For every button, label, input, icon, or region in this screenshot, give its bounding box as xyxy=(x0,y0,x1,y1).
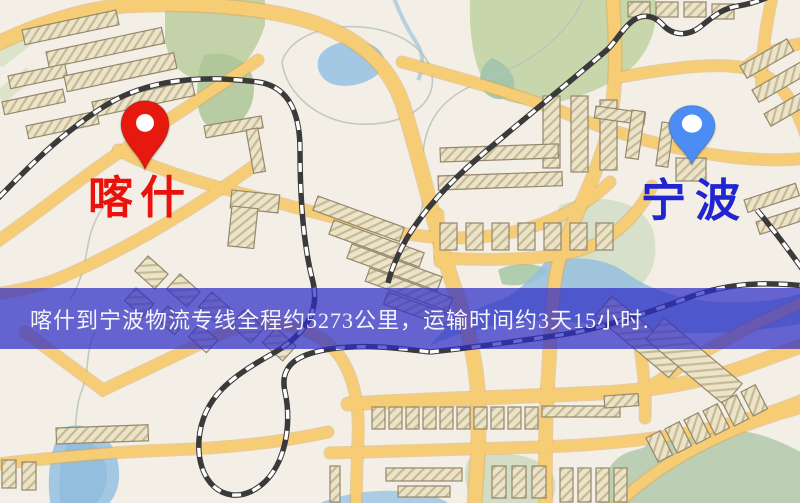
origin-pin-hole xyxy=(136,114,154,132)
route-info-banner: 喀什到宁波物流专线全程约5273公里，运输时间约3天15小时. xyxy=(0,288,800,349)
origin-city-label: 喀什 xyxy=(88,176,192,221)
destination-pin-icon[interactable] xyxy=(667,104,717,166)
destination-pin-body xyxy=(669,105,715,164)
origin-pin-icon[interactable] xyxy=(119,99,171,171)
destination-pin-hole xyxy=(682,115,702,133)
destination-city-label: 宁波 xyxy=(641,179,749,224)
route-info-text: 喀什到宁波物流专线全程约5273公里，运输时间约3天15小时. xyxy=(0,303,650,335)
base-map xyxy=(0,0,800,503)
map-canvas[interactable]: 喀什到宁波物流专线全程约5273公里，运输时间约3天15小时. 喀什 宁波 xyxy=(0,0,800,503)
origin-pin-body xyxy=(121,101,169,170)
